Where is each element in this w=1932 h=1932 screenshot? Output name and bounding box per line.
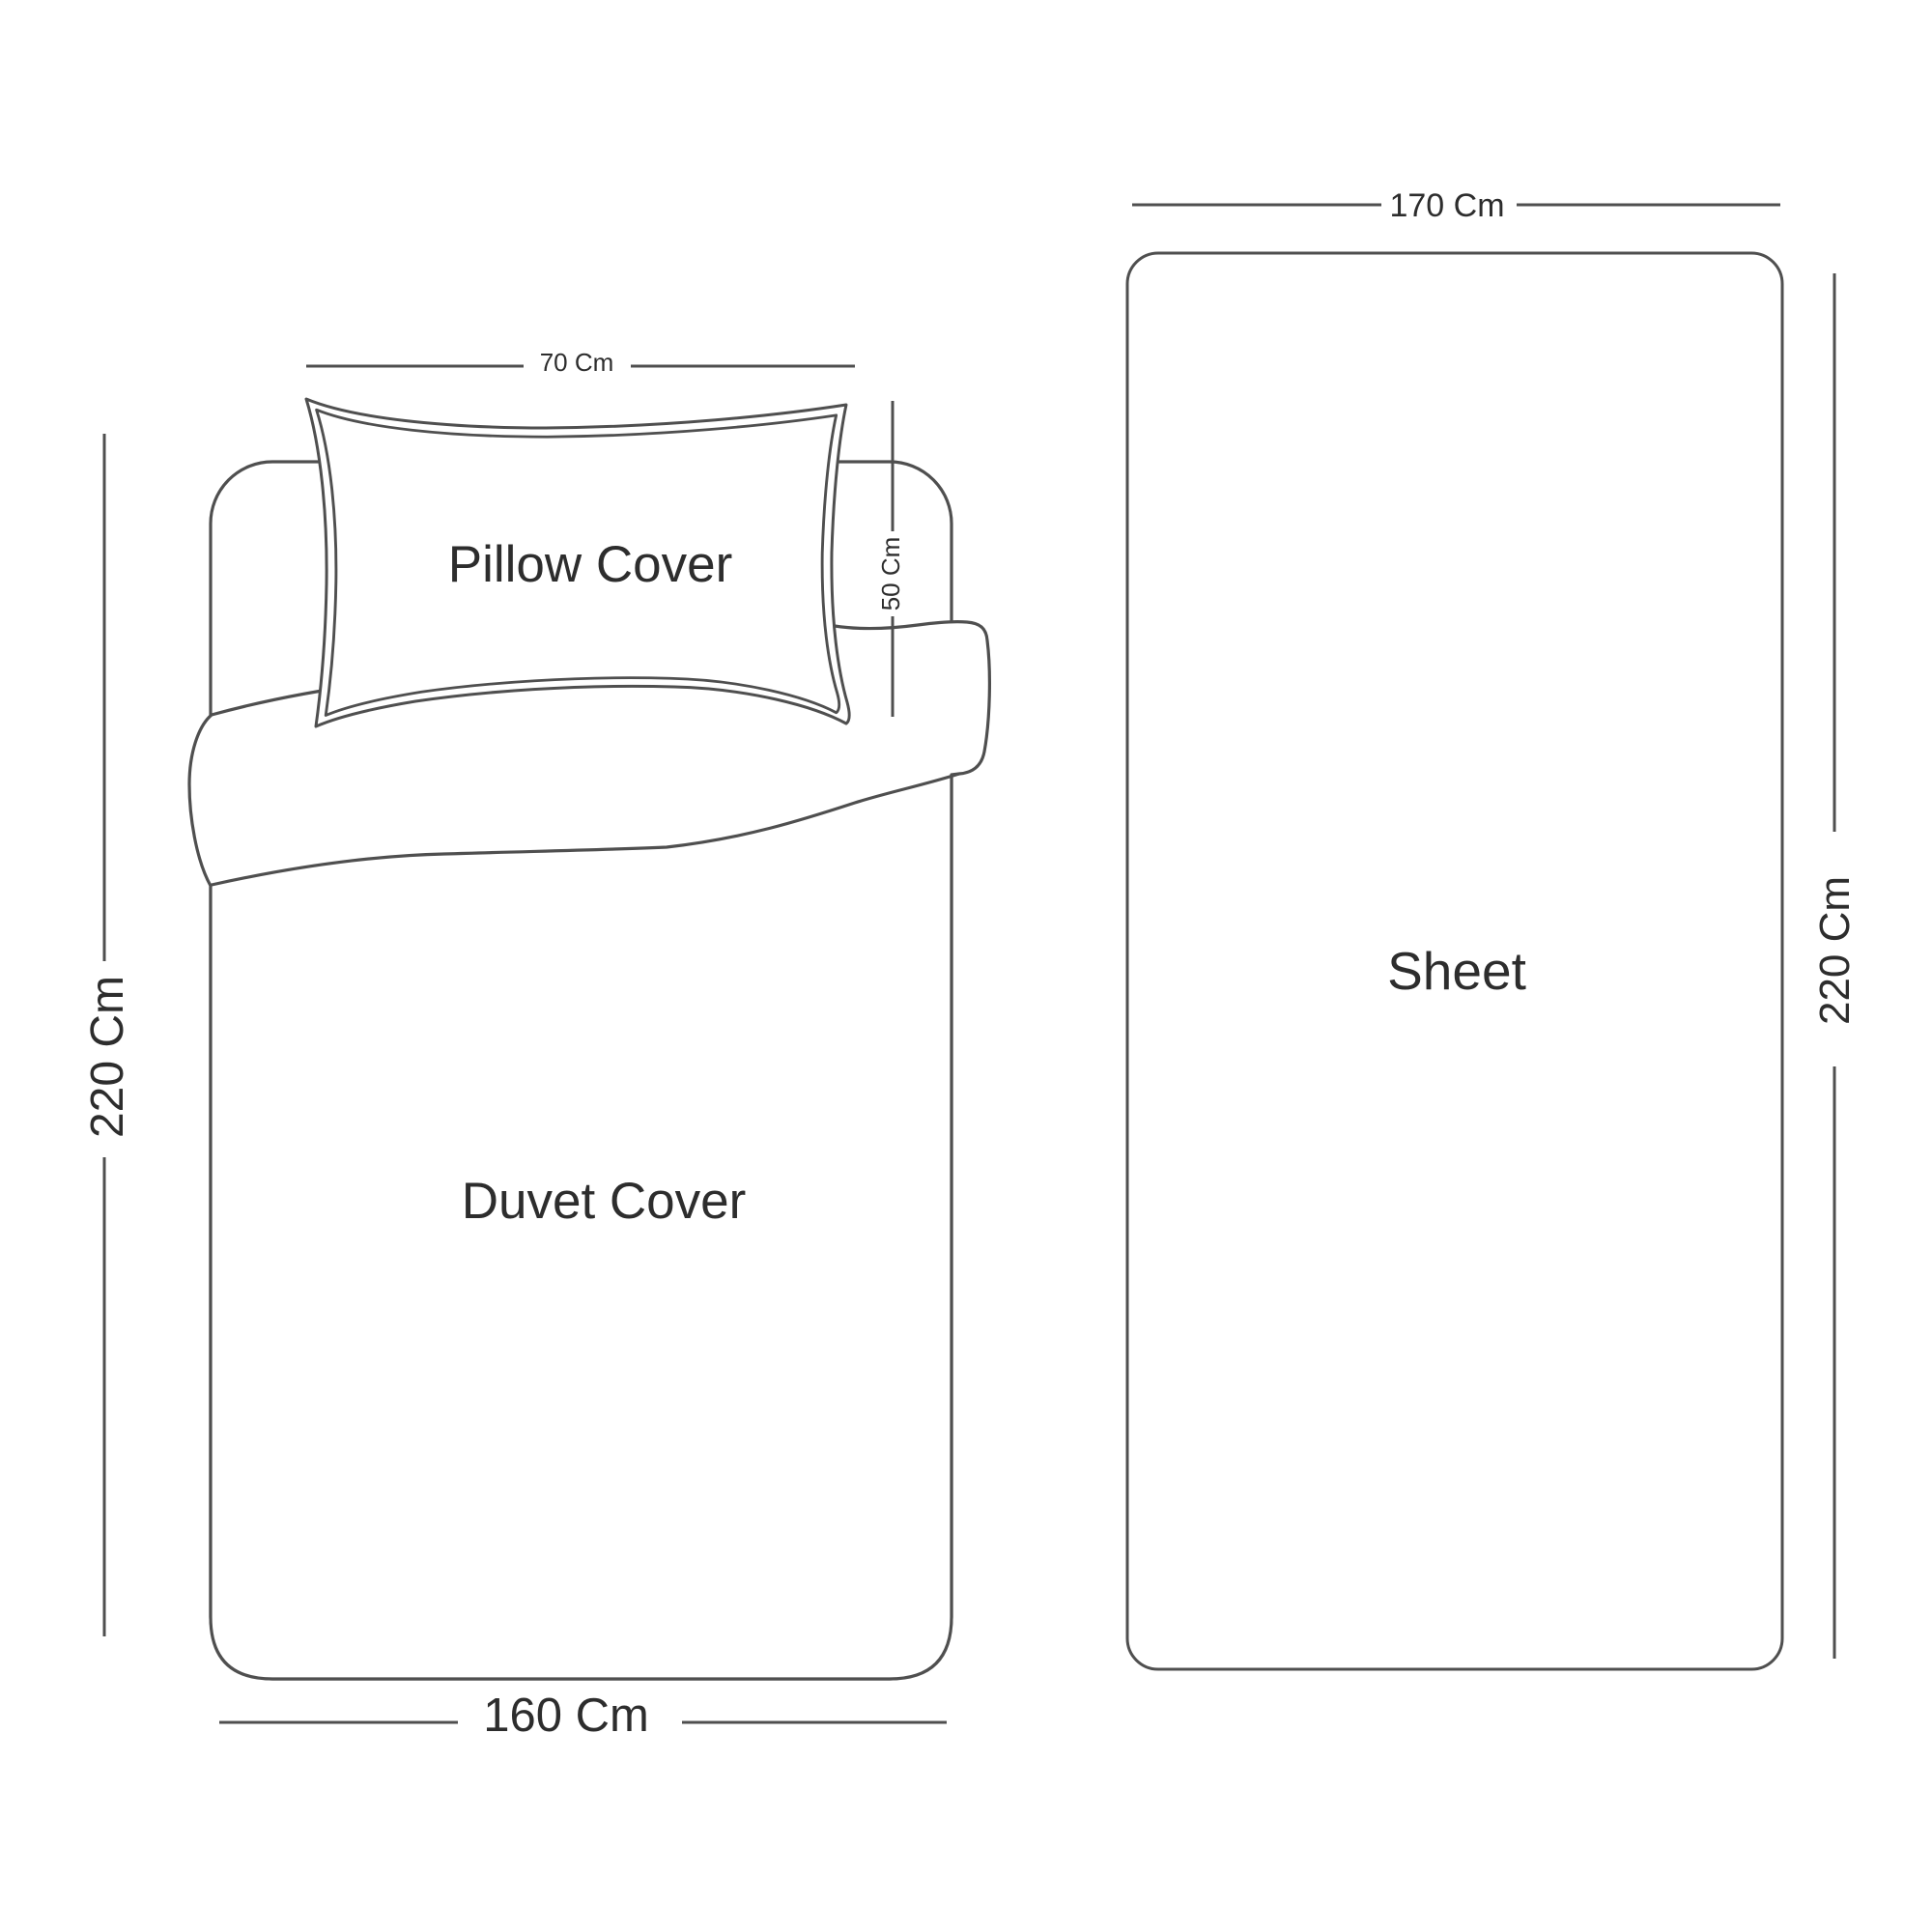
svg-text:Sheet: Sheet bbox=[1387, 941, 1526, 1001]
svg-text:170 Cm: 170 Cm bbox=[1389, 187, 1504, 224]
svg-text:50 Cm: 50 Cm bbox=[876, 537, 905, 611]
svg-text:220 Cm: 220 Cm bbox=[82, 976, 133, 1138]
svg-text:160 Cm: 160 Cm bbox=[483, 1690, 649, 1742]
svg-text:Duvet Cover: Duvet Cover bbox=[462, 1173, 747, 1230]
svg-text:70 Cm: 70 Cm bbox=[540, 348, 614, 377]
svg-text:220 Cm: 220 Cm bbox=[1811, 876, 1859, 1025]
svg-text:Pillow Cover: Pillow Cover bbox=[448, 536, 733, 593]
